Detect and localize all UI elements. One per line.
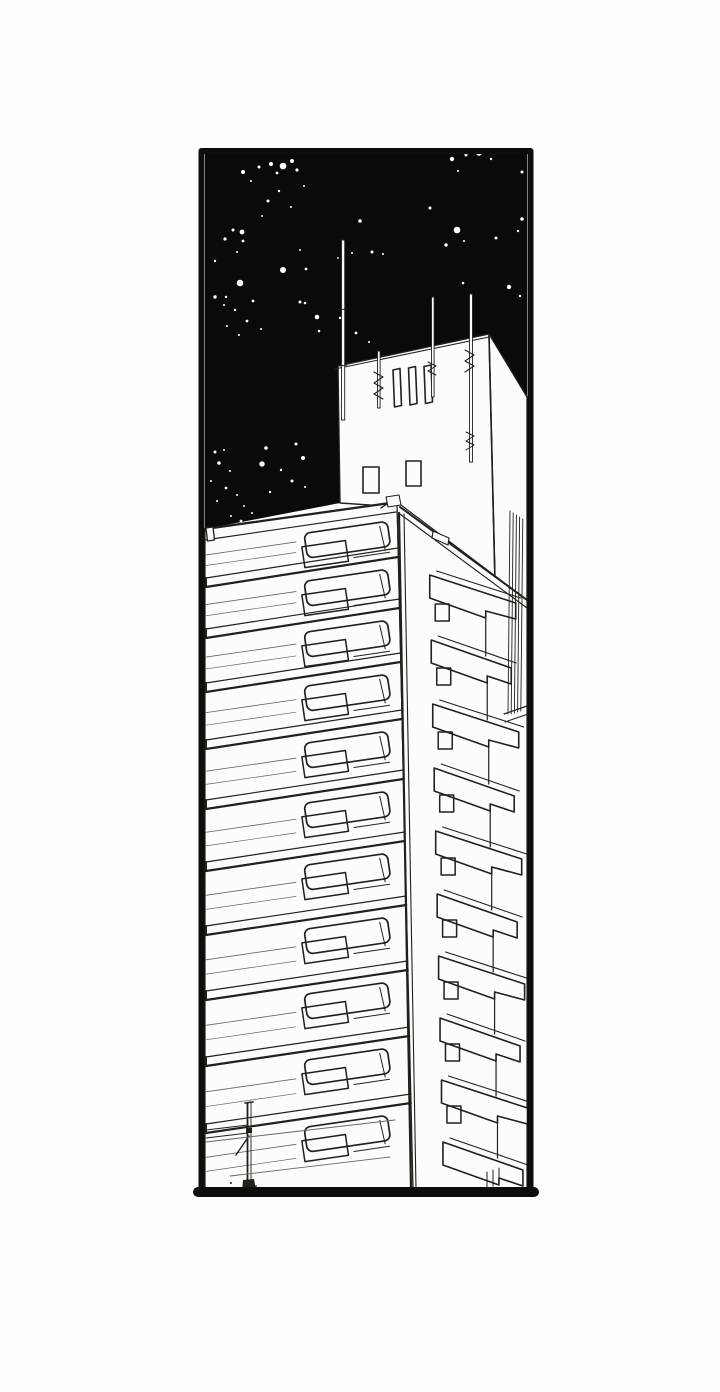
star (223, 237, 226, 240)
star (216, 500, 218, 502)
star (295, 168, 298, 171)
star (339, 317, 341, 319)
lamp-cap (245, 1102, 253, 1103)
star (213, 295, 216, 298)
star (315, 315, 320, 320)
star (304, 486, 306, 488)
star (521, 171, 524, 174)
star (276, 172, 279, 175)
comic-page (0, 0, 720, 1392)
star (450, 157, 454, 161)
manga-panel (0, 0, 720, 1392)
star (291, 480, 294, 483)
star (295, 443, 298, 446)
star (214, 451, 217, 454)
star (240, 230, 245, 235)
star (242, 240, 245, 243)
star (240, 520, 243, 523)
star (457, 170, 459, 172)
star (463, 240, 465, 242)
star (258, 166, 261, 169)
star (234, 309, 236, 311)
star (250, 180, 252, 182)
star (507, 285, 511, 289)
corner-bracket (386, 495, 401, 507)
star (351, 252, 353, 254)
star (462, 282, 465, 285)
star (241, 170, 245, 174)
star (382, 253, 384, 255)
star (269, 162, 273, 166)
star (299, 301, 302, 304)
star (246, 320, 249, 323)
star (299, 249, 301, 251)
lamp-joint (246, 1128, 252, 1133)
star (226, 325, 228, 327)
star (225, 487, 228, 490)
star (217, 461, 221, 465)
vent-slit (409, 367, 418, 406)
star (490, 158, 492, 160)
star (210, 480, 212, 482)
star (444, 243, 447, 246)
star (358, 219, 362, 223)
star (264, 446, 268, 450)
star (236, 251, 238, 253)
star (290, 159, 294, 163)
star (429, 207, 432, 210)
star (232, 229, 235, 232)
star (236, 494, 238, 496)
ground-speck (230, 1182, 232, 1184)
star (304, 302, 307, 305)
parapet-end-cap (206, 527, 215, 541)
star (223, 304, 225, 306)
star (495, 237, 498, 240)
star (225, 296, 227, 298)
vent-slit (393, 369, 402, 408)
star (280, 469, 282, 471)
star (368, 341, 370, 343)
antenna-mast (342, 240, 345, 420)
star (520, 217, 524, 221)
star (243, 505, 245, 507)
star (318, 330, 321, 333)
star (269, 491, 271, 493)
star (261, 215, 263, 217)
star (214, 260, 216, 262)
star (519, 295, 521, 297)
star (259, 461, 264, 466)
star (305, 268, 308, 271)
star (355, 332, 358, 335)
antenna-mast (432, 297, 435, 397)
star (454, 227, 461, 234)
star (280, 163, 287, 170)
star (303, 185, 305, 187)
star (337, 257, 339, 259)
star (267, 200, 270, 203)
star (229, 470, 231, 472)
star (252, 300, 255, 303)
star (238, 334, 240, 336)
star (290, 206, 292, 208)
star (230, 515, 232, 517)
star (301, 456, 305, 460)
star (371, 251, 374, 254)
star (251, 512, 253, 514)
star (260, 328, 262, 330)
star (280, 267, 286, 273)
ground-speck (255, 1185, 257, 1187)
star (278, 190, 280, 192)
star (517, 230, 519, 232)
star (223, 449, 225, 451)
star (237, 280, 244, 287)
